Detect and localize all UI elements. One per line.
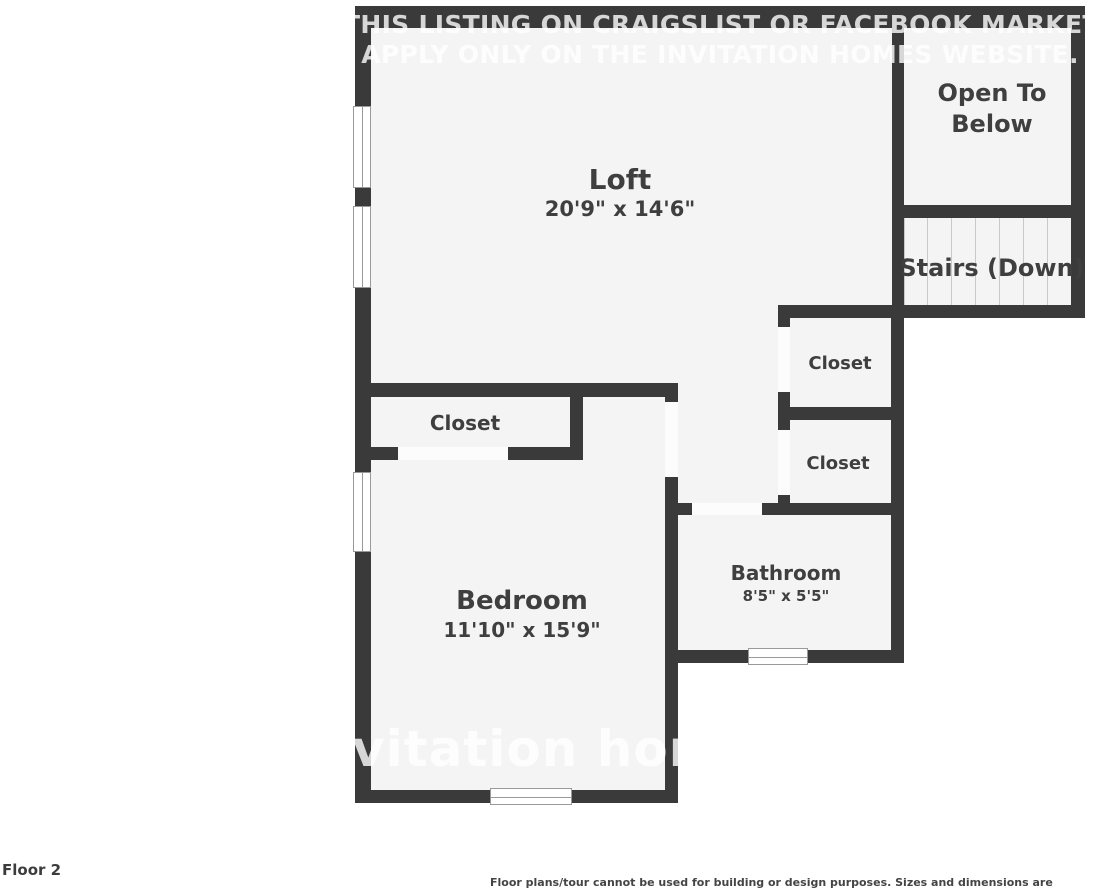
disclaimer-text: Floor plans/tour cannot be used for buil… <box>490 876 1095 891</box>
bedroom-floor-notch <box>583 397 665 463</box>
window-symbol-loft-1 <box>353 106 371 188</box>
brand-watermark-text: vitation homes <box>352 720 693 778</box>
bedroom-door-opening <box>665 402 678 477</box>
closet-lower-door-opening <box>778 430 790 495</box>
room-label-bedroom-closet: Closet <box>430 411 500 436</box>
closet-upper-door-opening <box>778 327 790 392</box>
wall-open-below-bottom <box>892 205 1085 218</box>
room-label-closet-lower: Closet <box>806 453 869 476</box>
window-symbol-bedroom-left <box>353 472 371 552</box>
room-label-closet-upper: Closet <box>808 353 871 376</box>
room-dims-bedroom: 11'10" x 15'9" <box>443 618 600 643</box>
room-label-bathroom: Bathroom <box>731 561 842 586</box>
room-label-open-to-below: Open To Below <box>912 78 1072 140</box>
brand-watermark: vitation homes <box>352 720 693 780</box>
room-dims-bathroom: 8'5" x 5'5" <box>743 587 830 606</box>
wall-stairs-bottom <box>778 305 1085 318</box>
bedroom-closet-door-opening <box>398 447 508 460</box>
room-label-loft: Loft <box>589 162 652 197</box>
room-dims-loft: 20'9" x 14'6" <box>545 196 696 222</box>
anti-scam-watermark-line1: THIS LISTING ON CRAIGSLIST OR FACEBOOK M… <box>350 10 1090 39</box>
room-label-bedroom: Bedroom <box>456 585 588 618</box>
floorplan-canvas: Loft 20'9" x 14'6" Open To Below Stairs … <box>0 0 1095 891</box>
bathroom-door-opening <box>692 503 762 515</box>
wall-loft-bottom <box>355 383 678 397</box>
wall-closets-divider <box>778 407 904 420</box>
window-symbol-loft-2 <box>353 206 371 288</box>
wall-right-lower <box>891 305 904 663</box>
window-symbol-bedroom-bottom <box>490 788 572 805</box>
room-label-stairs: Stairs (Down) <box>899 253 1084 283</box>
window-symbol-bathroom <box>748 648 808 665</box>
anti-scam-watermark-line2: APPLY ONLY ON THE INVITATION HOMES WEBSI… <box>350 40 1090 69</box>
anti-scam-watermark: THIS LISTING ON CRAIGSLIST OR FACEBOOK M… <box>350 8 1090 70</box>
floor-label: Floor 2 <box>2 861 61 879</box>
hallway-floor <box>678 384 778 509</box>
